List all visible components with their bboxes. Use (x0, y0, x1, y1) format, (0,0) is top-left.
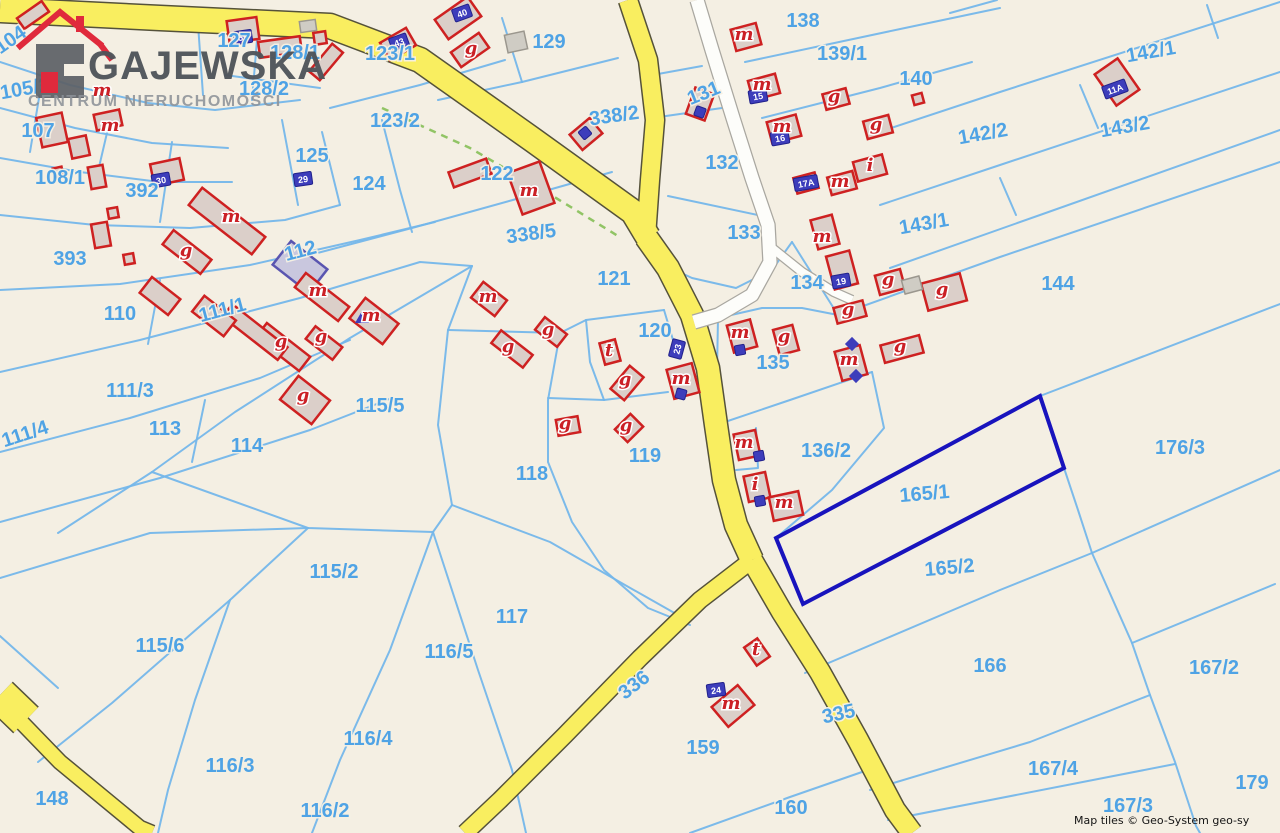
parcel-label: 148 (35, 788, 68, 810)
parcel-label: 111/3 (106, 380, 154, 402)
parcel-label: 116/4 (344, 728, 394, 750)
building-type-label: g (882, 269, 895, 290)
address-plate (754, 495, 766, 507)
building (91, 222, 111, 248)
building-type-label: g (502, 336, 515, 357)
svg-text:29: 29 (297, 174, 308, 185)
map-attribution: Map tiles © Geo-System geo-sy (1074, 814, 1249, 827)
parcel-label: 167/4 (1028, 758, 1079, 780)
address-plate: 19 (831, 273, 851, 289)
parcel-label: 115/6 (136, 635, 185, 657)
building-type-label: g (559, 413, 572, 434)
parcel-label: 127 (217, 30, 250, 52)
svg-text:24: 24 (710, 685, 721, 696)
parcel-label: 121 (597, 268, 630, 290)
building-type-label: m (671, 368, 690, 389)
building-type-label: i (752, 474, 759, 495)
parcel-label: 132 (705, 152, 738, 174)
address-plate: 29 (293, 171, 313, 186)
building-type-label: m (308, 280, 327, 301)
building-type-label: m (734, 24, 753, 45)
building-type-label: m (772, 116, 791, 137)
building-type-label: m (730, 322, 749, 343)
address-plate (734, 344, 746, 356)
parcel-label: 139/1 (817, 43, 867, 65)
parcel-label: 133 (727, 222, 760, 244)
parcel-label: 165/2 (924, 555, 976, 581)
parcel-label: 128/2 (239, 78, 289, 100)
building-type-label: g (297, 385, 310, 406)
address-plate (675, 388, 687, 400)
building-type-label: g (542, 319, 555, 340)
parcel-label: 118 (516, 463, 548, 485)
building-type-label: g (465, 38, 478, 59)
parcel-label: 107 (21, 120, 54, 142)
building (88, 165, 107, 189)
building-type-label: g (936, 279, 949, 300)
parcel-label: 119 (629, 445, 661, 467)
building (299, 19, 316, 32)
building-type-label: m (839, 349, 858, 370)
building-type-label: g (842, 299, 855, 320)
building-type-label: m (221, 206, 240, 227)
svg-text:19: 19 (835, 276, 847, 288)
parcel-label: 115/2 (310, 561, 359, 583)
map-viewport[interactable]: 5540432930151617A19232411Ammmmmmmmmmmmmm… (0, 0, 1280, 833)
building (912, 93, 924, 105)
building-type-label: m (519, 180, 538, 201)
building-type-label: g (870, 114, 883, 135)
parcel-label: 110 (104, 303, 136, 325)
parcel-label: 134 (790, 272, 824, 294)
building-type-label: m (752, 74, 771, 95)
parcel-label: 113 (149, 418, 181, 440)
building-type-label: g (828, 86, 841, 107)
parcel-label: 165/1 (899, 481, 951, 507)
parcel-label: 179 (1235, 772, 1268, 794)
parcel-label: 136/2 (801, 440, 851, 462)
parcel-label: 123/1 (365, 43, 415, 65)
building-type-label: i (867, 155, 874, 176)
parcel-label: 114 (231, 435, 264, 457)
parcel-label: 176/3 (1155, 437, 1205, 459)
parcel-label: 108/1 (35, 167, 85, 189)
building (107, 207, 119, 219)
building-type-label: t (752, 639, 761, 660)
building-type-label: g (620, 415, 633, 436)
parcel-label: 117 (496, 606, 528, 628)
road (0, 695, 26, 720)
parcel-label: 140 (899, 68, 932, 90)
cadastral-map[interactable]: 5540432930151617A19232411Ammmmmmmmmmmmmm… (0, 0, 1280, 833)
building-type-label: m (734, 432, 753, 453)
parcel-label: 124 (352, 173, 386, 195)
building-type-label: m (721, 693, 740, 714)
building-type-label: g (180, 240, 193, 261)
building-type-label: m (361, 305, 380, 326)
parcel-label: 138 (786, 10, 819, 32)
parcel-label: 160 (774, 797, 807, 819)
building-type-label: m (830, 171, 849, 192)
building (504, 31, 527, 53)
parcel-label: 393 (53, 248, 86, 270)
parcel-label: 122 (480, 163, 513, 185)
parcel-label: 116/3 (206, 755, 255, 777)
parcel-label: 125 (295, 145, 328, 167)
building-type-label: m (92, 80, 111, 101)
parcel-label: 167/2 (1189, 657, 1239, 679)
parcel-label: 116/2 (301, 800, 350, 822)
parcel-label: 135 (756, 352, 789, 374)
parcel-label: 123/2 (370, 110, 420, 132)
parcel-label: 159 (686, 737, 719, 759)
building-type-label: g (778, 326, 791, 347)
parcel-label: 129 (532, 31, 565, 53)
parcel-label: 166 (973, 655, 1006, 677)
address-plate (753, 450, 765, 462)
building-type-label: t (605, 340, 614, 361)
building-type-label: m (774, 492, 793, 513)
building-type-label: m (478, 286, 497, 307)
building-type-label: m (812, 226, 831, 247)
building-type-label: g (619, 369, 632, 390)
building (68, 135, 90, 158)
parcel-label: 116/5 (425, 641, 474, 663)
parcel-label: 128/1 (270, 42, 320, 64)
parcel-label: 115/5 (356, 395, 405, 417)
building-type-label: g (275, 331, 288, 352)
building-type-label: g (894, 336, 907, 357)
building-type-label: g (315, 326, 328, 347)
building (123, 253, 135, 265)
parcel-label: 144 (1041, 273, 1075, 295)
building-type-label: m (100, 115, 119, 136)
parcel-label: 392 (125, 180, 158, 202)
parcel-label: 120 (638, 320, 671, 342)
